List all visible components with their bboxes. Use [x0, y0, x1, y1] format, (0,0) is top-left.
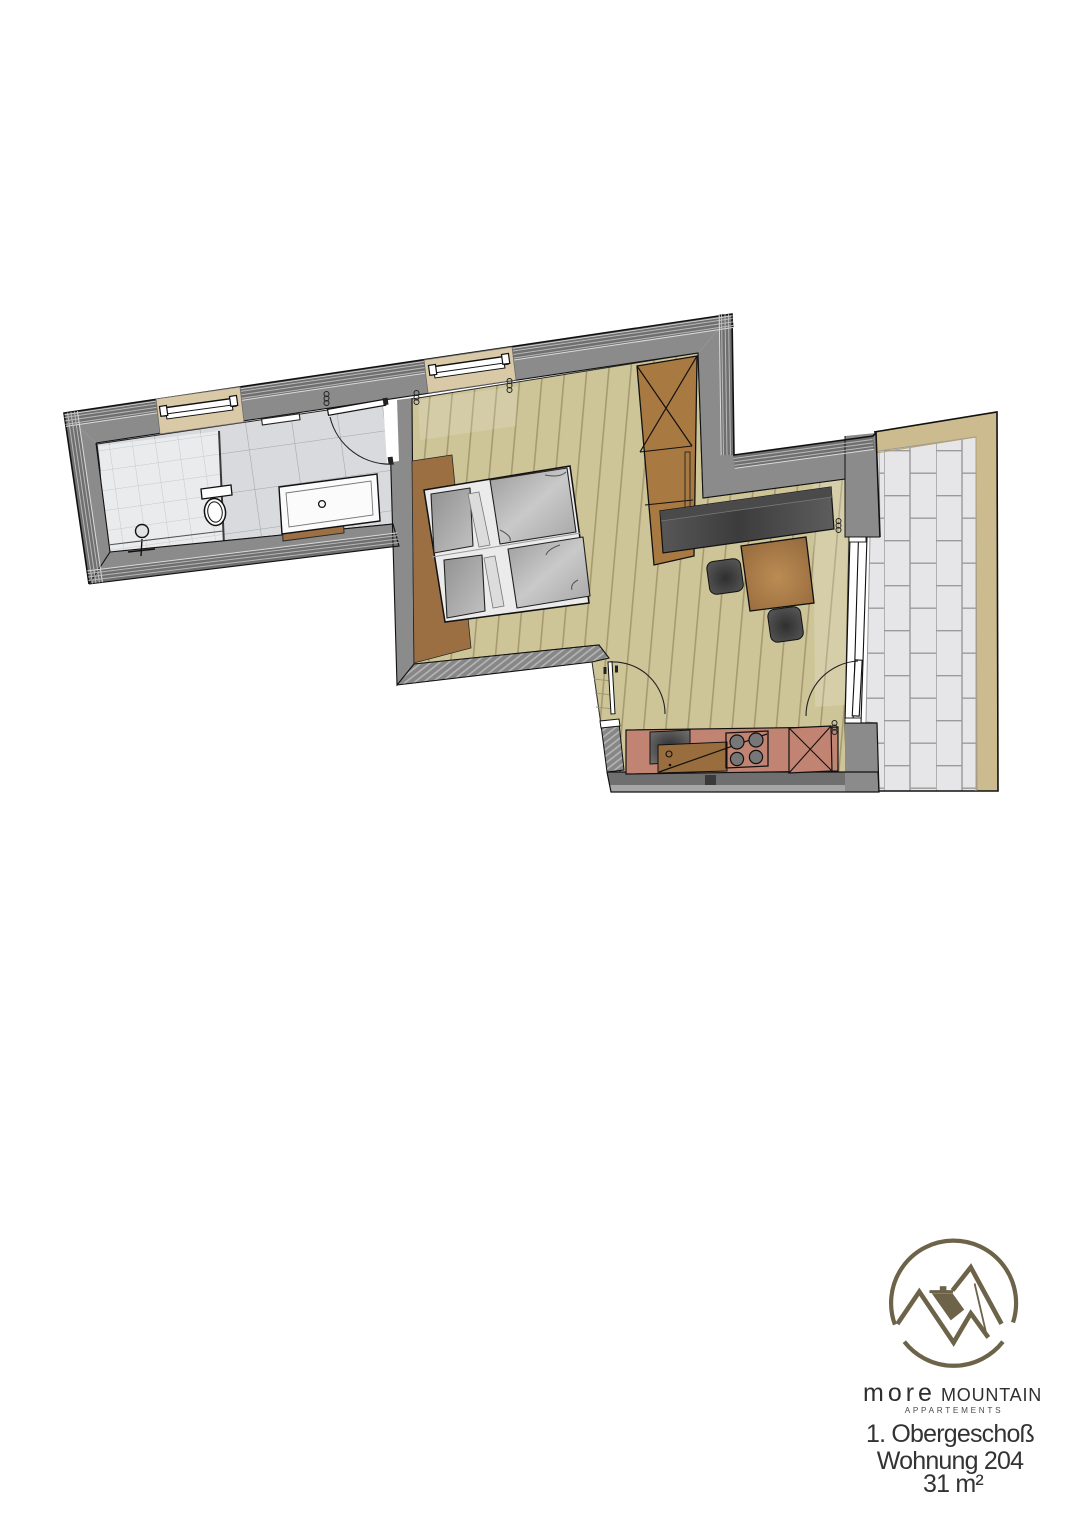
svg-text:APPARTEMENTS: APPARTEMENTS	[905, 1406, 1004, 1415]
svg-text:31 m²: 31 m²	[923, 1470, 983, 1498]
svg-text:MOUNTAIN: MOUNTAIN	[941, 1385, 1042, 1405]
svg-text:more: more	[863, 1379, 936, 1407]
svg-text:1. Obergeschoß: 1. Obergeschoß	[866, 1420, 1035, 1448]
